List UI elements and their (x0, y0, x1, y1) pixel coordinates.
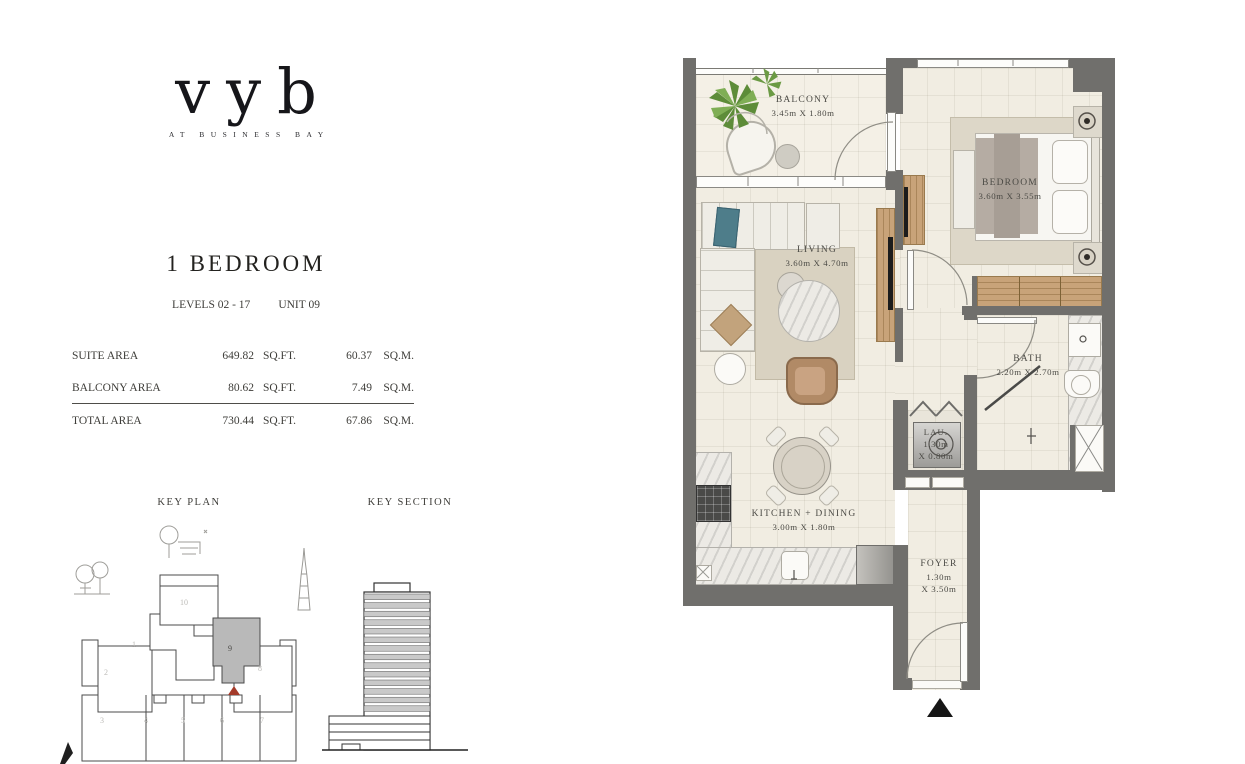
sqm-unit: SQ.M. (383, 350, 414, 362)
unit-number: 6 (220, 716, 224, 725)
burj-khalifa-icon (298, 548, 310, 610)
room-label-foyer: FOYER 1.30m X 3.50m (920, 558, 957, 596)
room-label-kitchen: KITCHEN + DINING 3.00m X 1.80m (752, 508, 857, 533)
unit-number: 2 (104, 668, 108, 677)
towel-rail (1027, 428, 1036, 444)
table-row: BALCONY AREA 80.62 SQ.FT. 7.49 SQ.M. (72, 382, 414, 396)
key-plan-drawing: 1 2 3 4 5 6 7 8 9 10 (58, 518, 320, 764)
sink-tap (791, 570, 797, 579)
room-label-bedroom: BEDROOM 3.60m X 3.55m (978, 177, 1041, 202)
room-dims: 3.60m X 3.55m (978, 190, 1041, 203)
window-mullions (748, 59, 1013, 186)
table-row: SUITE AREA 649.82 SQ.FT. 60.37 SQ.M. (72, 350, 414, 364)
sqft-unit: SQ.FT. (263, 350, 296, 362)
key-plan-title: KEY PLAN (58, 497, 320, 508)
north-arrow-icon (50, 740, 80, 764)
sqft-value: 730.44 (222, 415, 254, 427)
vanity-faucet (1080, 336, 1086, 342)
shaft-x (1075, 425, 1102, 470)
balcony-door-swing (835, 122, 893, 180)
unit-number-label: UNIT 09 (278, 299, 320, 311)
key-plan-map (58, 518, 320, 764)
room-label-bath: BATH 2.20m X 2.70m (996, 353, 1059, 378)
room-name: BATH (996, 353, 1059, 366)
room-dims: 3.00m X 1.80m (752, 521, 857, 534)
levels-label: LEVELS 02 - 17 (172, 299, 250, 311)
bedroom-door-swing (912, 250, 967, 305)
unit-number: 7 (260, 716, 264, 725)
podium (329, 716, 430, 750)
room-name: BEDROOM (978, 177, 1041, 190)
brochure-page: vyb AT BUSINESS BAY 1 BEDROOM LEVELS 02 … (0, 0, 1245, 764)
park-icon (160, 526, 207, 558)
unit-number: 4 (144, 716, 148, 725)
room-name: FOYER (920, 558, 957, 571)
levels-unit-line: LEVELS 02 - 17UNIT 09 (126, 299, 366, 311)
drain-x (697, 566, 709, 578)
table-row: TOTAL AREA 730.44 SQ.FT. 67.86 SQ.M. (72, 415, 414, 429)
sqft-unit: SQ.FT. (263, 415, 296, 427)
room-label-living: LIVING 3.60m X 4.70m (785, 244, 848, 269)
room-name: LAU. (919, 426, 954, 438)
room-dims: 1.30m (919, 438, 954, 450)
sqft-value: 649.82 (222, 350, 254, 362)
unit-number: 8 (258, 664, 262, 673)
table-divider (72, 403, 414, 404)
room-dims: X 0.80m (919, 450, 954, 462)
floor-plan: BALCONY 3.45m X 1.80m BEDROOM 3.60m X 3.… (683, 58, 1115, 720)
sqft-value: 80.62 (228, 382, 254, 394)
room-name: KITCHEN + DINING (752, 508, 857, 521)
row-label: BALCONY AREA (72, 382, 161, 394)
row-label: TOTAL AREA (72, 415, 142, 427)
room-name: LIVING (785, 244, 848, 257)
room-dims: 2.20m X 2.70m (996, 366, 1059, 379)
entrance-arrow (927, 698, 953, 717)
area-table: SUITE AREA 649.82 SQ.FT. 60.37 SQ.M. BAL… (72, 340, 414, 435)
sqm-value: 67.86 (346, 415, 372, 427)
lamp-icons (1079, 113, 1095, 265)
key-section-title: KEY SECTION (340, 497, 480, 508)
room-dims: 3.60m X 4.70m (785, 257, 848, 270)
unit-number: 5 (181, 716, 185, 725)
page-title: 1 BEDROOM (126, 251, 366, 277)
trees-icon (74, 562, 110, 594)
unit-number-highlighted: 9 (228, 644, 232, 653)
sqft-unit: SQ.FT. (263, 382, 296, 394)
sqm-unit: SQ.M. (383, 382, 414, 394)
room-dims: 3.45m X 1.80m (771, 107, 834, 120)
plan-linework (683, 58, 1115, 720)
room-dims: 1.30m (920, 571, 957, 584)
sqm-value: 7.49 (352, 382, 372, 394)
building-footprint (82, 575, 296, 761)
room-name: BALCONY (771, 94, 834, 107)
unit-number: 1 (132, 640, 136, 649)
brand-tagline: AT BUSINESS BAY (126, 130, 366, 139)
sqm-unit: SQ.M. (383, 415, 414, 427)
entry-door-swing (907, 623, 963, 679)
room-label-balcony: BALCONY 3.45m X 1.80m (771, 94, 834, 119)
row-label: SUITE AREA (72, 350, 138, 362)
unit-number: 10 (180, 598, 188, 607)
room-dims: X 3.50m (920, 583, 957, 596)
brand-logo: vyb (126, 58, 366, 126)
unit-number: 3 (100, 716, 104, 725)
room-label-laundry: LAU. 1.30m X 0.80m (919, 426, 954, 462)
sqm-value: 60.37 (346, 350, 372, 362)
key-section-drawing (322, 550, 468, 764)
brand-block: vyb AT BUSINESS BAY (126, 58, 366, 139)
laundry-bifold-door (910, 402, 962, 416)
